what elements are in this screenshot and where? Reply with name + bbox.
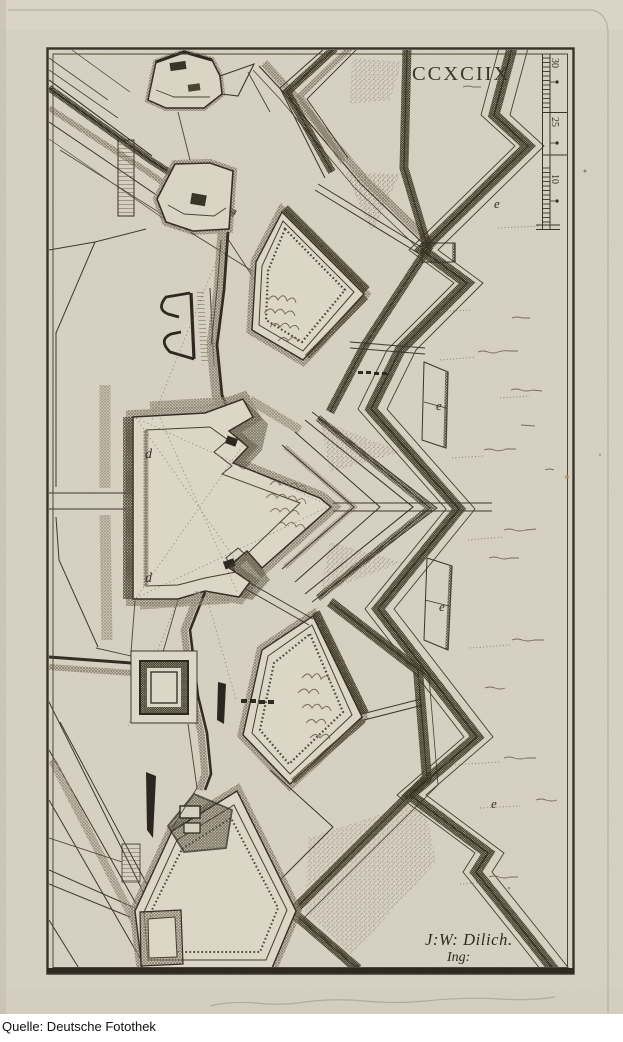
svg-text:d: d bbox=[145, 447, 153, 462]
svg-text:e: e bbox=[439, 599, 445, 614]
svg-text:CCXCIIX: CCXCIIX bbox=[412, 63, 510, 85]
svg-text:25: 25 bbox=[549, 117, 560, 127]
svg-text:30: 30 bbox=[549, 58, 560, 68]
svg-text:e: e bbox=[494, 196, 500, 211]
svg-text:10: 10 bbox=[549, 174, 560, 184]
svg-text:Ing:: Ing: bbox=[446, 950, 470, 965]
svg-text:e: e bbox=[436, 398, 442, 413]
svg-text:J:W: Dilich.: J:W: Dilich. bbox=[425, 930, 513, 949]
svg-text:e: e bbox=[491, 796, 497, 811]
svg-text:Quelle: Deutsche Fotothek: Quelle: Deutsche Fotothek bbox=[2, 1019, 156, 1034]
